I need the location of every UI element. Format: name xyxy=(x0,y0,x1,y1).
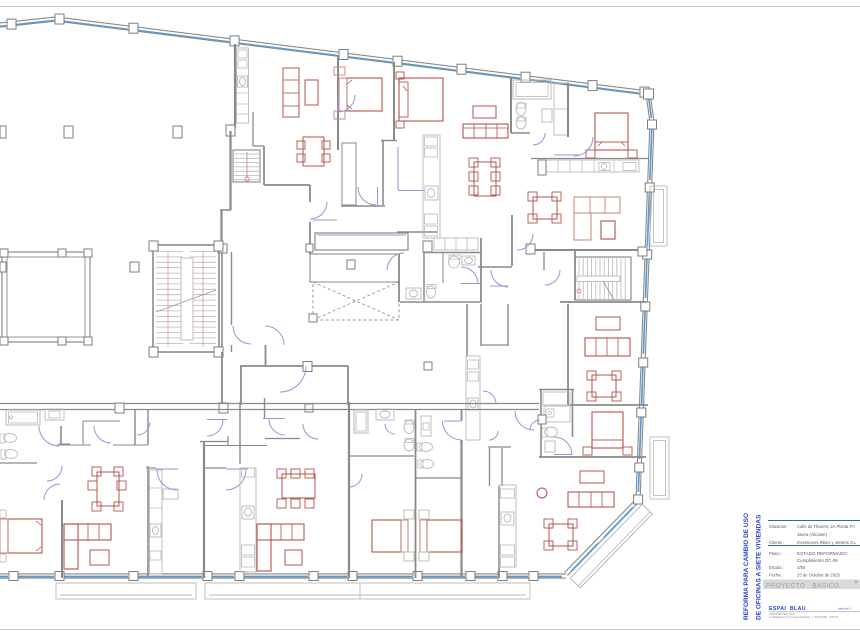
svg-text:ESTADO REFORMADO:: ESTADO REFORMADO: xyxy=(797,551,848,556)
svg-text:ESPAI BLAU: ESPAI BLAU xyxy=(769,606,806,612)
svg-text:Plano :: Plano : xyxy=(769,551,782,556)
svg-text:Javea (Alicante): Javea (Alicante) xyxy=(797,532,828,537)
svg-text:Calle de Thiviers, 2A Planta P: Calle de Thiviers, 2A Planta Pri xyxy=(797,524,855,529)
svg-text:PROYECTO BASICO: PROYECTO BASICO xyxy=(766,582,839,589)
svg-text:REFORMA PARA CAMBIO DE USO: REFORMA PARA CAMBIO DE USO xyxy=(743,513,750,620)
svg-text:Fecha :: Fecha : xyxy=(769,573,783,578)
svg-text:Escala :: Escala : xyxy=(769,565,784,570)
svg-text:Cliente :: Cliente : xyxy=(769,540,784,545)
svg-text:23 de Octubre de 2025: 23 de Octubre de 2025 xyxy=(797,573,841,578)
svg-text:hada foie S: hada foie S xyxy=(838,607,851,611)
svg-text:Situacion :: Situacion : xyxy=(769,524,789,529)
svg-text:Cumplimiento DC-09: Cumplimiento DC-09 xyxy=(797,558,838,563)
svg-text:Inversiones Ribes y Jenkins S.: Inversiones Ribes y Jenkins S.L xyxy=(797,540,857,545)
svg-text:1/50: 1/50 xyxy=(797,565,806,570)
svg-text:DE OFICINAS A SIETE VIVIENDAS: DE OFICINAS A SIETE VIVIENDAS xyxy=(756,514,763,620)
svg-text:C/ Magallanes,23 2ª Jávea (Ali: C/ Magallanes,23 2ª Jávea (Alicante) · T… xyxy=(769,615,839,619)
